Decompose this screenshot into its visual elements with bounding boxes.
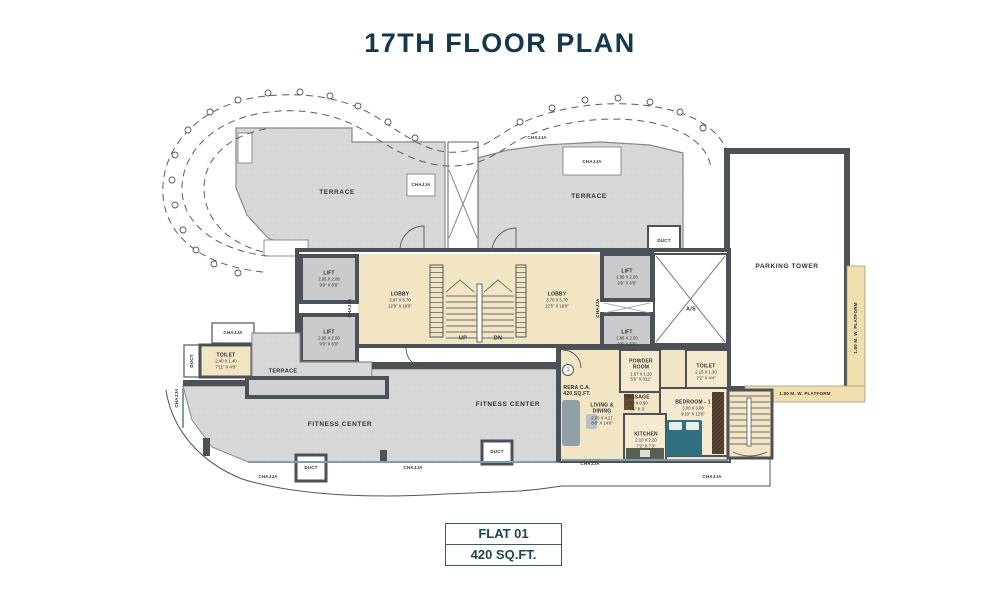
floor-plan-page: 17TH FLOOR PLAN	[0, 0, 1000, 600]
parking-tower-label: PARKING TOWER	[755, 263, 818, 271]
central-shaft	[448, 142, 478, 252]
flat-info-box: FLAT 01 420 SQ.FT.	[445, 523, 562, 566]
lift-label: LIFT 2.95 X 2.08 9'9" X 6'8"	[318, 330, 339, 347]
chajja-label: CHAJJA	[223, 330, 242, 336]
fitness-center-label: FITNESS CENTER	[308, 421, 372, 429]
page-title: 17TH FLOOR PLAN	[0, 28, 1000, 59]
exit-stairs	[728, 390, 772, 458]
stairs-up-label: UP	[459, 336, 467, 343]
duct-label: DUCT	[189, 354, 195, 367]
passage-label: PASSAGE 2.30 X 0.90 7'6" X 3'	[624, 395, 649, 412]
terrace-small-label: TERRACE	[269, 369, 298, 376]
duct-label: DUCT	[490, 449, 503, 455]
toilet-right-label: TOILET 2.15 X 1.30 7'2" X 4'4"	[695, 364, 716, 381]
platform-bottom-label: 1.80 M. W. PLATFORM	[779, 391, 830, 397]
toilet-left-label: TOILET 2.40 X 1.40 7'11" X 4'8"	[215, 353, 236, 370]
duct-label: DUCT	[657, 238, 670, 244]
chajja-label: CHAJJA	[595, 298, 601, 317]
plan-linework	[0, 0, 1000, 600]
kitchen-label: KITCHEN 2.10 X 2.20 7'2" X 7'3"	[634, 432, 658, 449]
chajja-label: CHAJJA	[411, 182, 430, 188]
platform-right-label: 1.80 M. W. PLATFORM	[853, 302, 859, 353]
stairs-dn-label: DN	[494, 336, 503, 343]
chajja-label: CHAJJA	[174, 388, 180, 407]
terrace-right-label: TERRACE	[571, 193, 607, 201]
flat-area: 420 SQ.FT.	[446, 544, 561, 565]
chajja-label: CHAJJA	[403, 465, 422, 471]
terrace-left-label: TERRACE	[319, 189, 355, 197]
chajja-label: CHAJJA	[580, 461, 599, 467]
duct-label: DUCT	[304, 465, 317, 471]
powder-room-label: POWDER ROOM 1.67 X 1.20 5'6" X 3'11"	[626, 359, 656, 382]
bedroom-label: BEDROOM - 1 3.00 X 3.88 9'10" X 12'8"	[675, 400, 711, 417]
chajja-label: CHAJJA	[702, 474, 721, 480]
rera-area-label: RERA C.A. 420 SQ.FT.	[563, 385, 590, 398]
flat-number: FLAT 01	[446, 524, 561, 544]
chajja-label: CHAJJA	[258, 474, 277, 480]
lift-label: LIFT 2.95 X 2.08 9'9" X 6'8"	[318, 271, 339, 288]
lift-label: LIFT 2.85 X 2.00 9'8" X 6'8"	[616, 330, 637, 347]
unit-number-marker: 1	[562, 364, 574, 376]
ac-shaft-label: A/S	[686, 307, 696, 314]
lift-label: LIFT 2.95 X 2.08 9'9" X 6'8"	[616, 269, 637, 286]
living-dining-label: LIVING & DINING 2.65 X 4.27 8'8" X 14'0"	[587, 403, 617, 426]
lobby-right-label: LOBBY 3.78 X 5.70 12'5" X 18'9"	[545, 292, 569, 309]
fitness-center-label: FITNESS CENTER	[476, 401, 540, 409]
chajja-label: CHAJJA	[582, 159, 601, 165]
chajja-label: CHAJJA	[527, 135, 546, 141]
lobby-left-label: LOBBY 3.87 X 5.70 12'9" X 18'8"	[388, 292, 412, 309]
chajja-label: CHAJJA	[347, 298, 353, 317]
